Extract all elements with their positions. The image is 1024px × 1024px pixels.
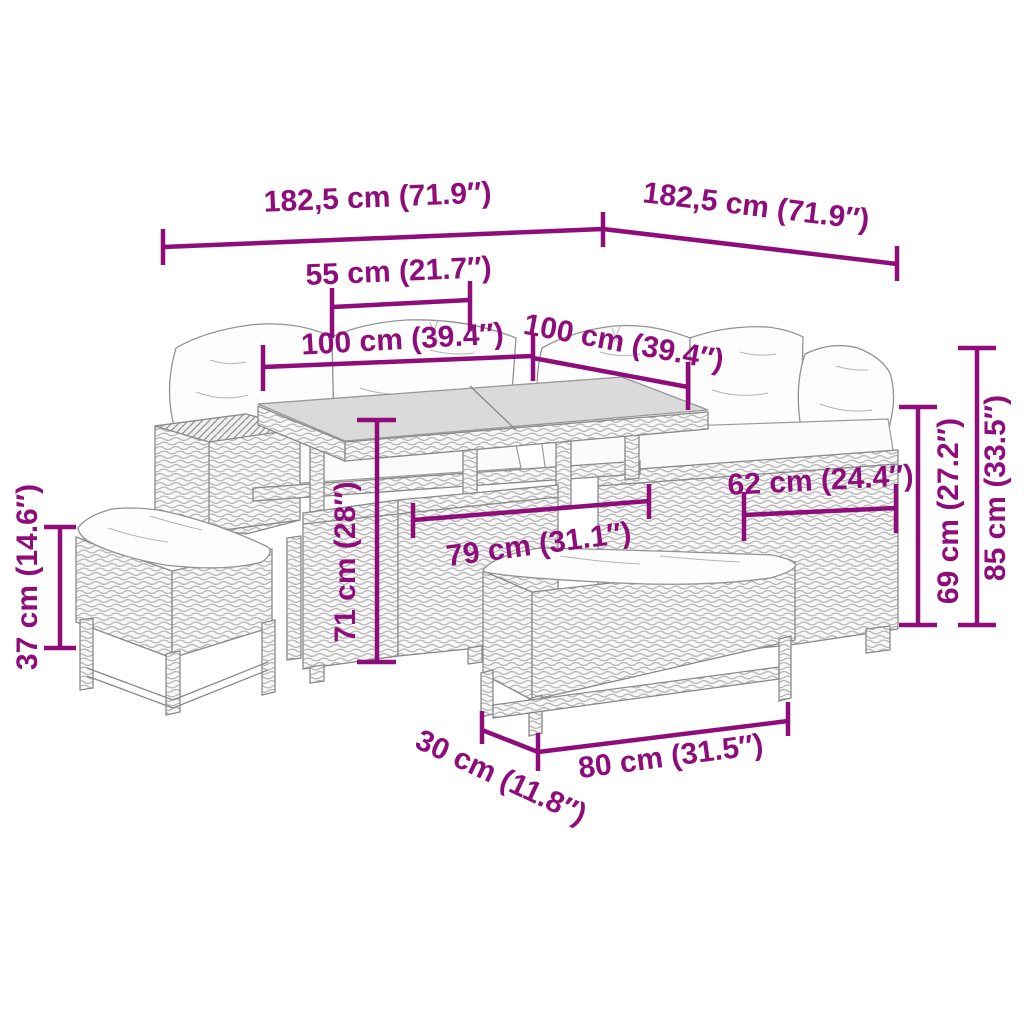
stool-leg [80, 618, 93, 690]
table-foot [310, 665, 324, 683]
right-sofa-foot [866, 626, 890, 653]
dim-bench-depth-30: 30 cm (11.8″) [410, 711, 591, 831]
dim-label-table-inner-55: 55 cm (21.7″) [305, 251, 492, 292]
dim-label-table-height-71: 71 cm (28″) [329, 481, 362, 642]
stool-leg [262, 620, 275, 695]
bench-leg [779, 636, 791, 701]
dim-stool-height-37: 37 cm (14.6″) [11, 484, 76, 670]
dim-total-width-left: 182,5 cm (71.9″) [163, 176, 603, 265]
dim-label-stool-height-37: 37 cm (14.6″) [11, 484, 44, 670]
dim-back-height-85: 85 cm (33.5″) [958, 348, 1012, 625]
diagram-canvas: 182,5 cm (71.9″) 182,5 cm (71.9″) 55 cm … [0, 0, 1024, 1024]
dim-seat-height-69: 69 cm (27.2″) [899, 407, 965, 625]
dim-label-total-width-left: 182,5 cm (71.9″) [263, 176, 492, 219]
dim-total-width-right: 182,5 cm (71.9″) [603, 176, 897, 281]
left-sofa-leg [287, 536, 301, 660]
dim-label-back-height-85: 85 cm (33.5″) [979, 395, 1012, 581]
furniture-line-art [76, 320, 898, 736]
bench [481, 548, 796, 736]
bench-leg [481, 670, 493, 717]
table-foot [468, 646, 482, 664]
dim-label-total-width-right: 182,5 cm (71.9″) [641, 176, 871, 237]
stool [76, 508, 275, 715]
dim-bench-length-80: 80 cm (31.5″) [538, 702, 788, 785]
dimension-diagram: 182,5 cm (71.9″) 182,5 cm (71.9″) 55 cm … [0, 0, 1024, 1024]
dim-label-seat-height-69: 69 cm (27.2″) [932, 418, 965, 604]
